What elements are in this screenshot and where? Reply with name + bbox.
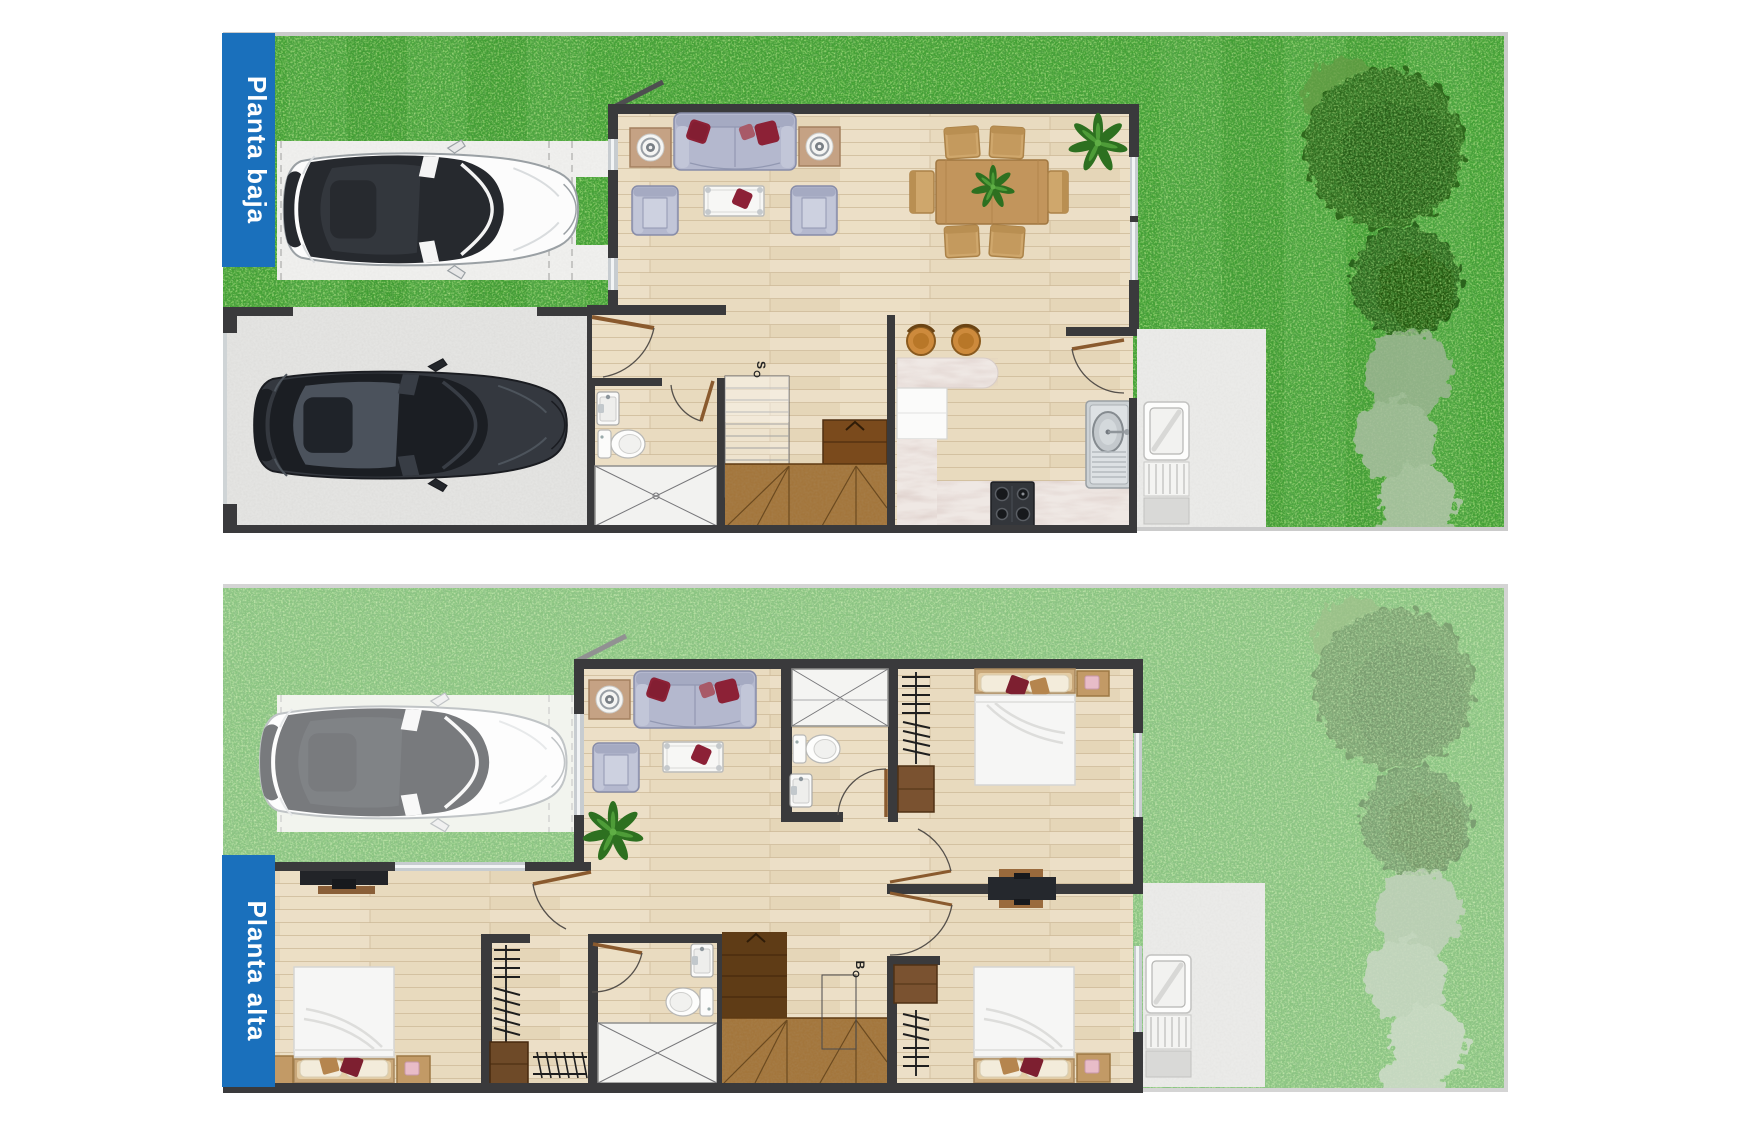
- svg-text:Planta baja: Planta baja: [242, 76, 272, 224]
- svg-text:S: S: [754, 361, 768, 369]
- svg-text:B: B: [853, 961, 867, 970]
- svg-text:Planta alta: Planta alta: [242, 900, 272, 1041]
